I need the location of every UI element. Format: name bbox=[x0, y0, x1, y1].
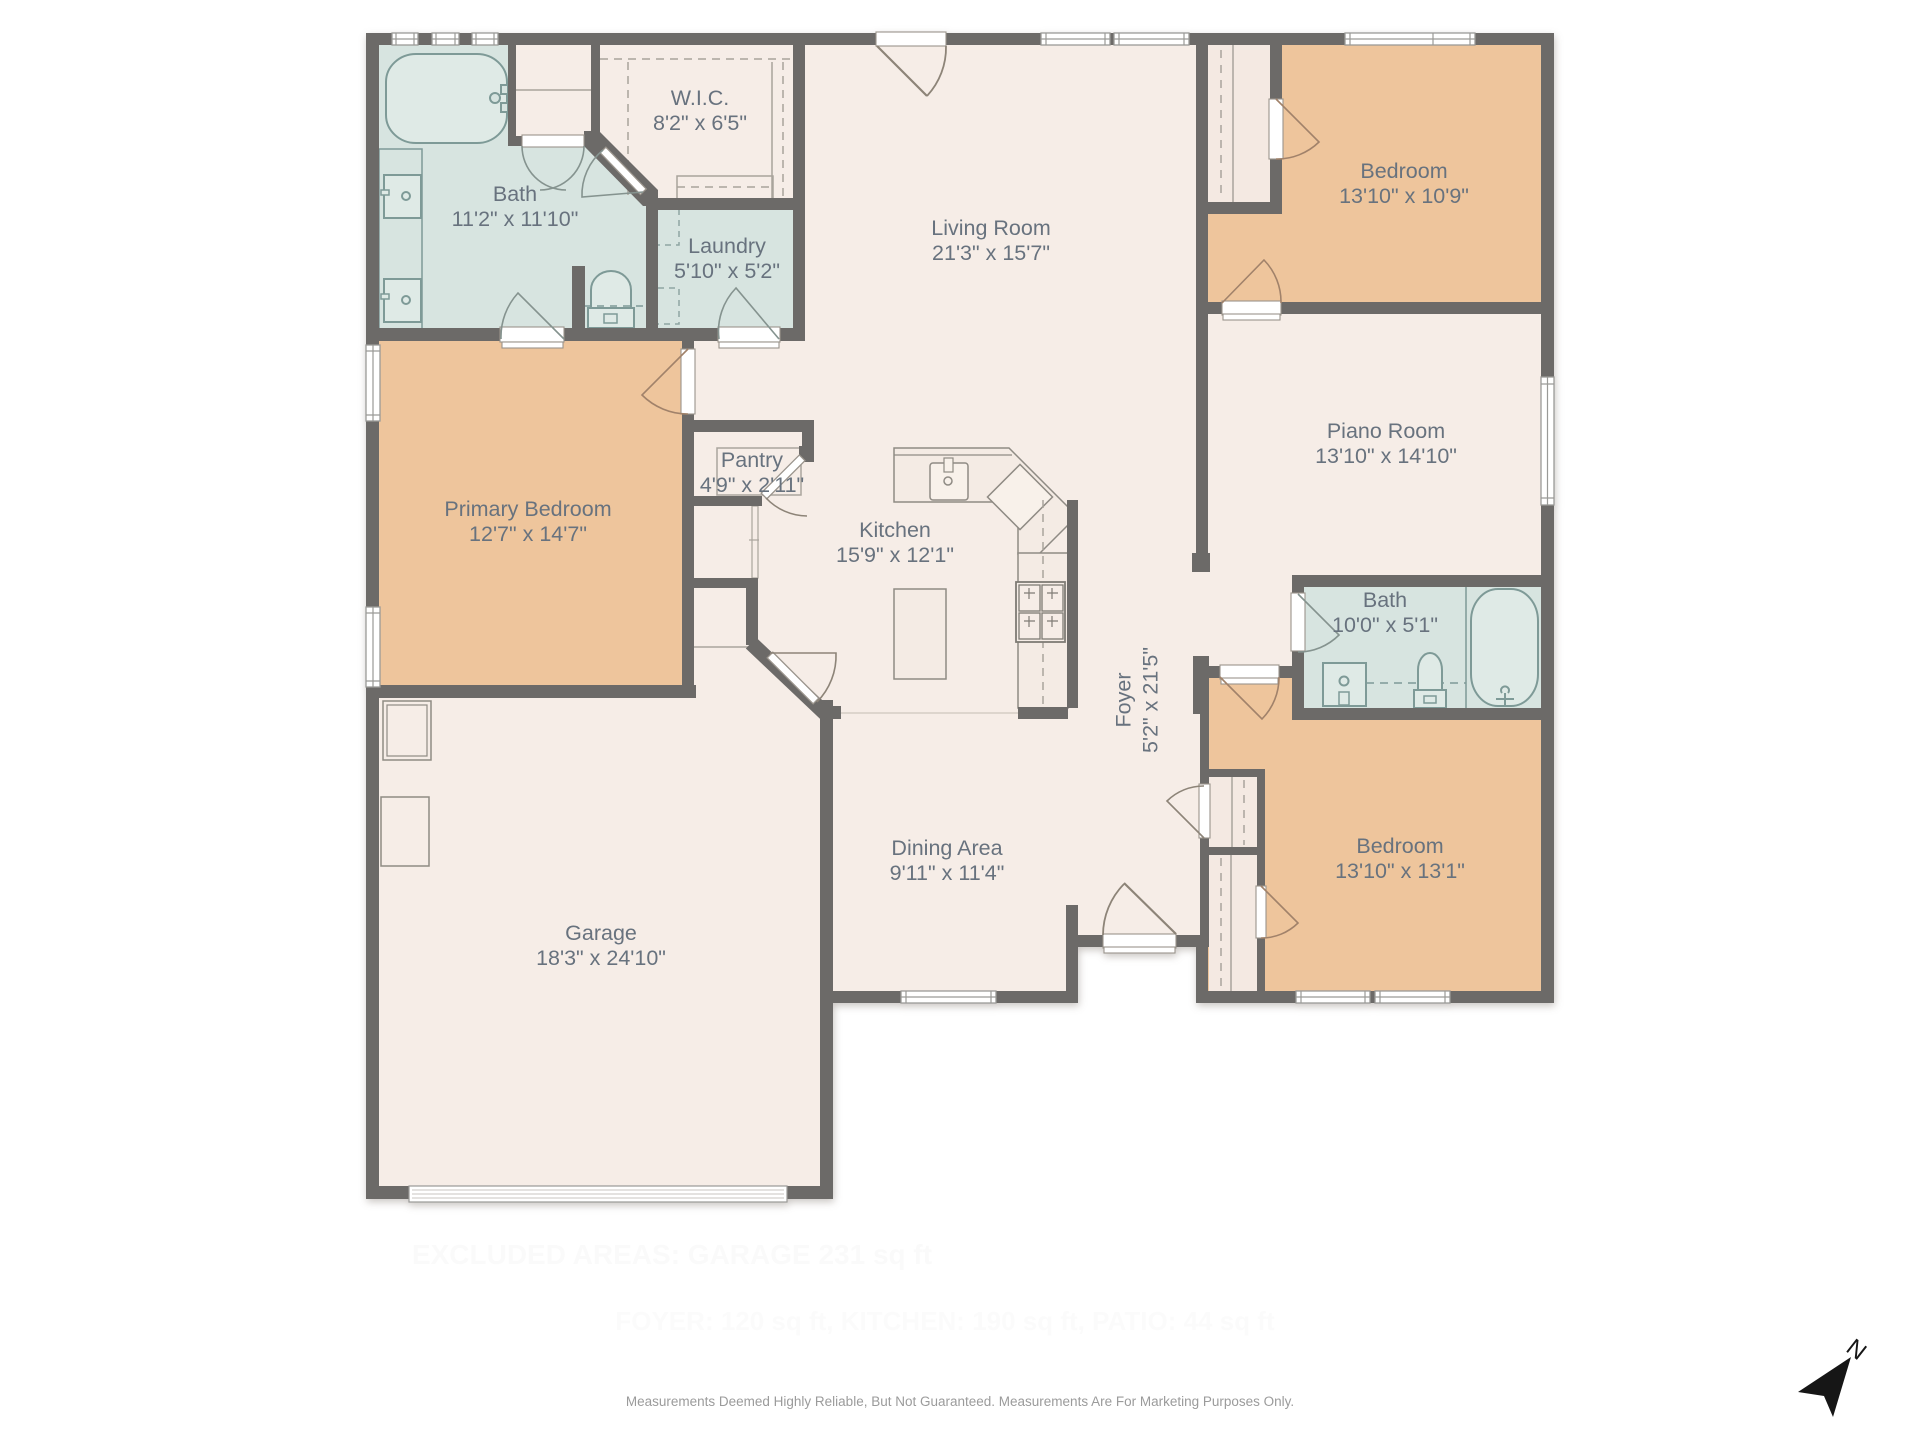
svg-text:Bath: Bath bbox=[1363, 588, 1407, 612]
svg-text:4'9" x 2'11": 4'9" x 2'11" bbox=[700, 473, 804, 497]
svg-text:18'3" x 24'10": 18'3" x 24'10" bbox=[536, 946, 666, 970]
svg-text:11'2" x 11'10": 11'2" x 11'10" bbox=[452, 207, 579, 231]
svg-text:Pantry: Pantry bbox=[721, 448, 783, 472]
svg-text:Garage: Garage bbox=[565, 921, 637, 945]
svg-text:5'10" x 5'2": 5'10" x 5'2" bbox=[674, 259, 780, 283]
svg-text:9'11" x 11'4": 9'11" x 11'4" bbox=[890, 861, 1005, 885]
svg-text:Measurements Deemed Highly Rel: Measurements Deemed Highly Reliable, But… bbox=[626, 1394, 1294, 1409]
svg-text:10'0" x 5'1": 10'0" x 5'1" bbox=[1332, 613, 1438, 637]
svg-text:FOYER: 120 sq ft, KITCHEN: 190: FOYER: 120 sq ft, KITCHEN: 190 sq ft, PA… bbox=[615, 1306, 1275, 1336]
svg-text:15'9" x 12'1": 15'9" x 12'1" bbox=[836, 543, 954, 567]
svg-text:Foyer: Foyer bbox=[1112, 673, 1136, 728]
svg-text:13'10" x 13'1": 13'10" x 13'1" bbox=[1335, 859, 1465, 883]
svg-text:Kitchen: Kitchen bbox=[859, 518, 931, 542]
svg-text:13'10" x 10'9": 13'10" x 10'9" bbox=[1339, 184, 1469, 208]
svg-text:Bath: Bath bbox=[493, 182, 537, 206]
svg-text:W.I.C.: W.I.C. bbox=[671, 86, 730, 110]
svg-text:5'2" x 21'5": 5'2" x 21'5" bbox=[1139, 647, 1163, 753]
svg-text:13'10" x 14'10": 13'10" x 14'10" bbox=[1315, 444, 1457, 468]
svg-text:8'2" x 6'5": 8'2" x 6'5" bbox=[653, 111, 747, 135]
svg-text:EXCLUDED AREAS: GARAGE 231 sq: EXCLUDED AREAS: GARAGE 231 sq ft bbox=[412, 1239, 932, 1270]
svg-text:Piano Room: Piano Room bbox=[1327, 419, 1445, 443]
svg-text:Dining Area: Dining Area bbox=[891, 836, 1002, 860]
svg-text:Bedroom: Bedroom bbox=[1360, 159, 1447, 183]
svg-text:12'7" x 14'7": 12'7" x 14'7" bbox=[469, 522, 587, 546]
svg-text:Bedroom: Bedroom bbox=[1356, 834, 1443, 858]
svg-text:Primary Bedroom: Primary Bedroom bbox=[444, 497, 611, 521]
svg-text:Living Room: Living Room bbox=[931, 216, 1051, 240]
svg-text:Laundry: Laundry bbox=[688, 234, 766, 258]
svg-text:21'3" x 15'7": 21'3" x 15'7" bbox=[932, 241, 1050, 265]
